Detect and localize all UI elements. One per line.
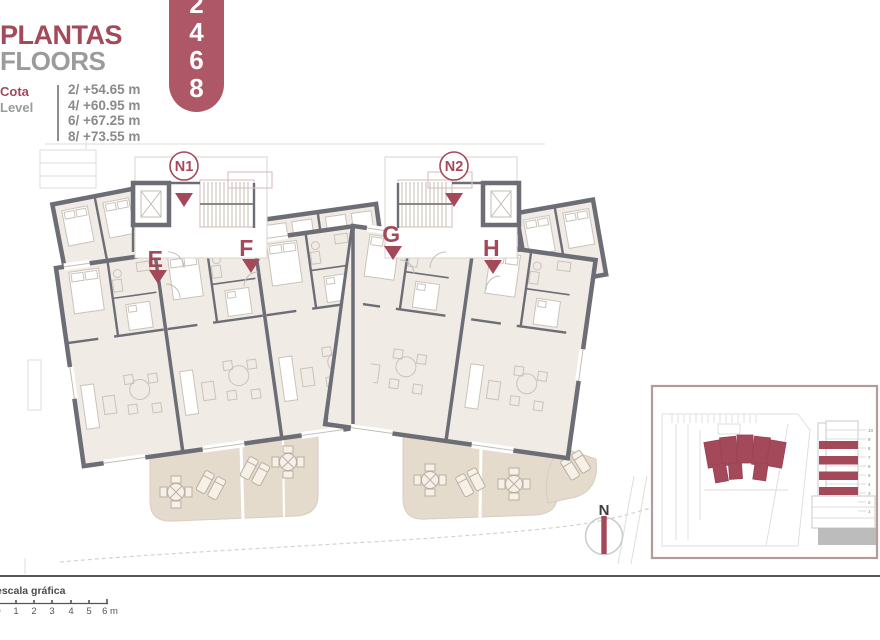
scale-tick-label: 3 bbox=[49, 606, 54, 617]
scale-tick-label: 6 m bbox=[102, 606, 118, 617]
unit-label-g: G bbox=[382, 221, 399, 247]
floors-badge: 2 4 6 8 bbox=[169, 0, 224, 112]
north-bar bbox=[601, 516, 606, 554]
section-base bbox=[818, 528, 876, 545]
core-label-n2: N2 bbox=[440, 152, 468, 180]
core-label-n1-text: N1 bbox=[175, 159, 194, 175]
scale-tick-label: 2 bbox=[31, 606, 36, 617]
unit-label-h: H bbox=[483, 235, 499, 261]
unit-label-f: F bbox=[239, 235, 253, 261]
core-label-n1: N1 bbox=[170, 152, 198, 180]
scale-tick-label: 0 bbox=[0, 606, 1, 617]
badge-digit: 2 bbox=[169, 0, 224, 18]
scale-ruler bbox=[0, 0, 140, 640]
scale-tick-label: 5 bbox=[86, 606, 91, 617]
badge-digit: 4 bbox=[169, 18, 224, 46]
scale-tick-label: 4 bbox=[68, 606, 73, 617]
north-arrow: N bbox=[586, 502, 623, 555]
unit-label-e: E bbox=[148, 246, 163, 272]
badge-digit: 8 bbox=[169, 74, 224, 102]
plan-sheet: N1 N2 E F G H N bbox=[0, 0, 880, 640]
core-label-n2-text: N2 bbox=[445, 159, 464, 175]
section-floor-label: 10 bbox=[868, 428, 874, 433]
scale-tick-label: 1 bbox=[13, 606, 18, 617]
key-plan: 10 9 8 7 6 5 4 3 2 1 bbox=[652, 386, 877, 558]
badge-digit: 6 bbox=[169, 46, 224, 74]
